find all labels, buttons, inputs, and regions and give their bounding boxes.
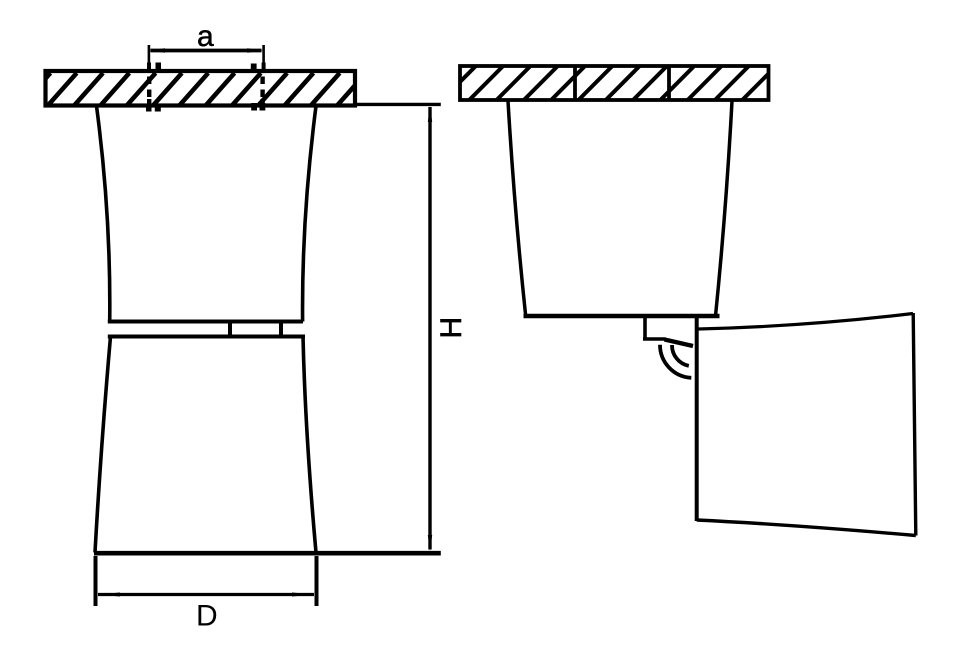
svg-text:D: D xyxy=(196,600,218,633)
svg-text:a: a xyxy=(197,20,214,53)
svg-text:H: H xyxy=(435,317,468,339)
